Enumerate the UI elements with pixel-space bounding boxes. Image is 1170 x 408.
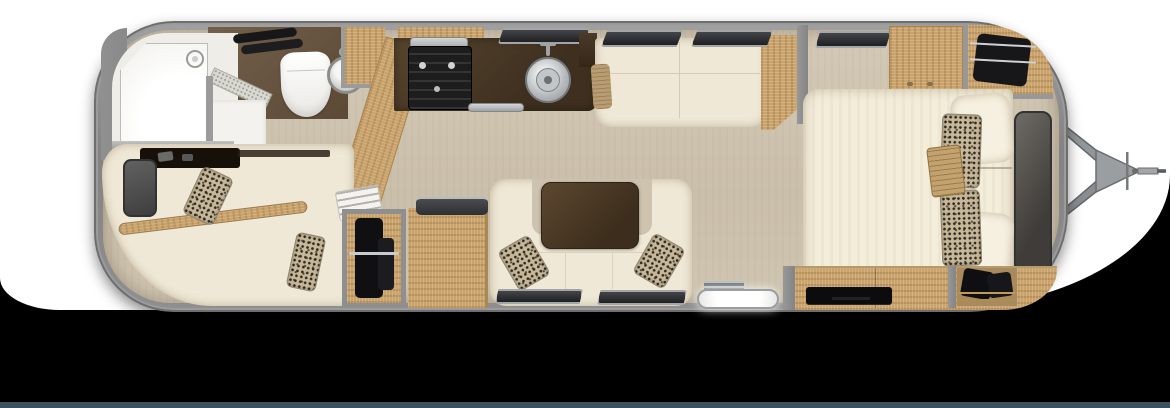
- credenza-divider: [948, 266, 956, 308]
- cabinet-handle-1: [907, 82, 913, 86]
- cabinet-appliance-top: [416, 197, 488, 215]
- bed-leopard-pillow-bottom: [940, 189, 983, 266]
- sink-drain: [544, 76, 552, 84]
- cooktop-knob-2: [448, 62, 455, 69]
- shower-head-icon: [186, 50, 204, 68]
- entry-step: [697, 289, 779, 309]
- curbside-sofa-seam-v: [679, 42, 680, 118]
- counter-trim: [468, 103, 524, 112]
- wardrobe-rod: [349, 252, 399, 255]
- dinette-table: [541, 182, 639, 249]
- bedroom-window: [815, 31, 891, 48]
- headboard-tv: [1014, 111, 1052, 275]
- bedroom-tv-stand: [832, 297, 870, 300]
- dinette-window-2: [597, 290, 687, 305]
- wardrobe-clothes-2: [378, 238, 394, 290]
- bedroom-tv: [806, 287, 892, 304]
- dinette-seam-v2: [612, 253, 613, 289]
- bedroom-partition-bottom: [783, 266, 795, 310]
- cooktop: [408, 46, 472, 110]
- coupler: [1157, 169, 1166, 173]
- curbside-sofa: [595, 38, 767, 127]
- lounge-tv: [123, 159, 157, 217]
- kitchen-faucet-neck: [546, 42, 550, 56]
- cabinet-handle-2: [927, 82, 933, 86]
- gold-rail-1: [959, 292, 1015, 294]
- dinette-seam-v1: [565, 253, 566, 289]
- bed-ribbed-pillow: [926, 144, 966, 198]
- bath-divider-wall: [206, 76, 213, 150]
- shoe-wardrobe-items-2: [986, 271, 1013, 298]
- floorplan-stage: [0, 0, 1170, 408]
- overhead-cabinet: [889, 26, 963, 93]
- curbside-sofa-seam-h: [600, 73, 760, 74]
- cooktop-knob-3: [434, 86, 440, 92]
- credenza-ledge: [238, 150, 330, 157]
- sofa-arm-pillow: [590, 63, 612, 109]
- a-frame-hitch: [1056, 126, 1170, 216]
- slate-footer-strip: [0, 402, 1170, 408]
- mid-cabinet: [408, 208, 488, 308]
- dinette-window-1: [495, 289, 583, 304]
- curbside-window-1: [601, 30, 683, 47]
- gold-rail-2: [959, 299, 1015, 301]
- credenza-item-2: [182, 154, 193, 161]
- curbside-window-2: [691, 30, 773, 47]
- jack-handle: [1126, 152, 1129, 190]
- cooktop-knob-1: [419, 62, 426, 69]
